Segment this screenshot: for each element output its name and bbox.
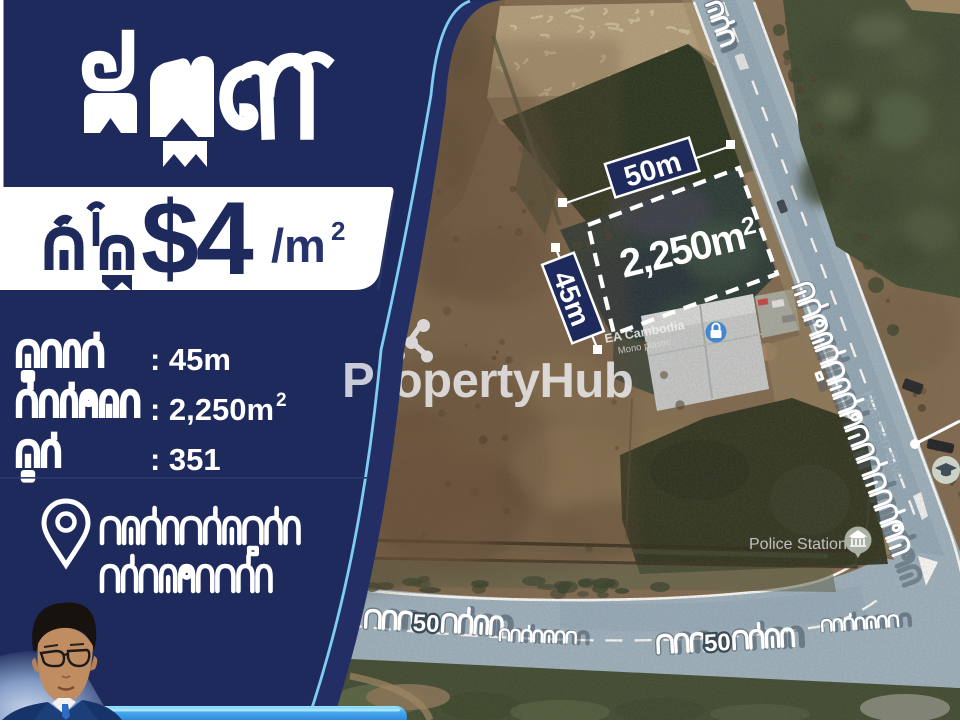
- svg-text:: 351: : 351: [150, 442, 221, 477]
- svg-text:50: 50: [412, 610, 440, 638]
- svg-text:: 45m: : 45m: [150, 342, 231, 377]
- svg-text:50: 50: [703, 629, 731, 657]
- svg-text:2: 2: [276, 390, 287, 411]
- svg-text:$4: $4: [141, 181, 254, 297]
- svg-text:2: 2: [331, 216, 345, 246]
- svg-text:/m: /m: [271, 219, 326, 272]
- svg-text:: 2,250m: : 2,250m: [150, 392, 274, 427]
- svg-text:Police Station: Police Station: [749, 536, 847, 553]
